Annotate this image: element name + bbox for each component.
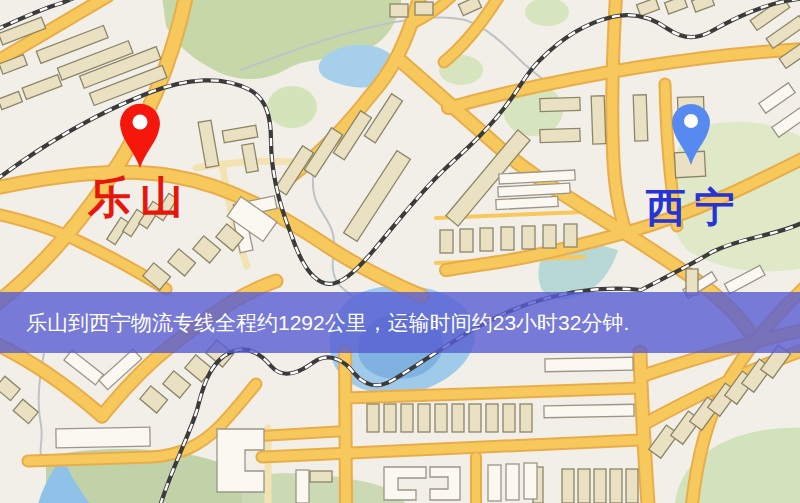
route-info-banner: 乐山到西宁物流专线全程约1292公里，运输时间约23小时32分钟. [0,292,800,353]
origin-label: 乐山 [87,173,192,221]
map-background: 乐山 西宁 [0,0,800,503]
origin-pin-hole [133,115,148,130]
destination-label: 西宁 [645,185,744,229]
destination-pin-hole [684,114,698,128]
map-canvas[interactable]: 乐山 西宁 乐山到西宁物流专线全程约1292公里，运输时间约23小时32分钟. [0,0,800,503]
route-banner-text: 乐山到西宁物流专线全程约1292公里，运输时间约23小时32分钟. [26,292,629,353]
